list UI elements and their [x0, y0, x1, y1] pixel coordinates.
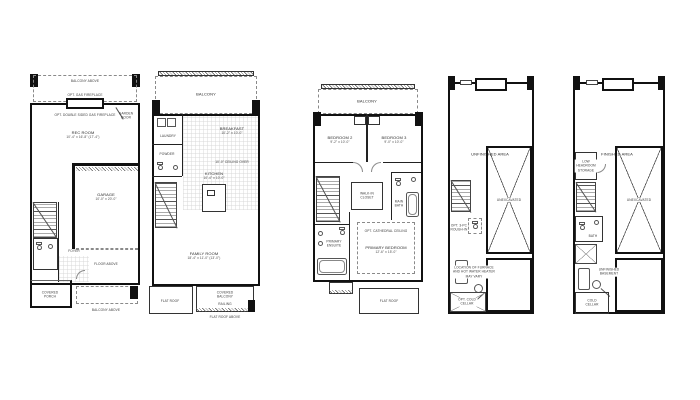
powder-label: POWDER	[160, 152, 175, 156]
room-dims: 9'-2" x 10'-0"	[328, 141, 353, 145]
unfinished-basement-label: UNFINISHED BASEMENT	[597, 268, 620, 277]
label-text: WALK-IN CLOSET	[360, 192, 374, 200]
toilet-icon	[157, 162, 163, 171]
label-text: OPT. 3-PC ROUGH-IN	[451, 224, 468, 232]
label-text: OPT. DOUBLE SIDED GAS FIREPLACE	[54, 113, 115, 117]
toilet-bowl	[473, 224, 478, 230]
interior-wall	[182, 114, 183, 176]
entry-step	[602, 78, 634, 91]
balcony-railing	[329, 290, 353, 294]
label-text: PRIMARY ENSUITE	[326, 240, 341, 248]
label-text: UNEXCAVATED	[497, 198, 521, 202]
garage-wall	[72, 163, 75, 249]
label-text: FLAT ROOF	[161, 299, 180, 303]
closet	[354, 116, 366, 125]
label-text: COLD CELLAR	[585, 299, 598, 307]
ceiling-note-label: 10'-0" CEILING OVER	[215, 160, 249, 164]
plan-basement-unfinished: UNFINISHED AREA UNEXCAVATED OPT. 3-PC RO…	[448, 76, 534, 316]
dryer-icon	[167, 118, 176, 127]
label-text: 10'-0" CEILING OVER	[215, 160, 249, 164]
toilet-icon	[472, 221, 478, 230]
label-text: FLAT ROOF ABOVE	[210, 315, 241, 319]
double-fireplace-label: OPT. DOUBLE SIDED GAS FIREPLACE	[54, 113, 115, 117]
floor-plans-sheet: BALCONY ABOVE OPT. GAS FIREPLACE OPT. DO…	[0, 0, 700, 400]
room-dims: 10'-4" x 16'-8" (17'-4")	[66, 136, 99, 140]
bathtub-icon	[317, 258, 347, 275]
balcony-pier	[152, 100, 160, 114]
garden-door-label: GARDEN DOOR	[119, 112, 133, 121]
interior-wall	[383, 162, 421, 163]
balcony-label: BALCONY	[196, 91, 216, 96]
label-text: FLOOR ABOVE	[94, 262, 118, 266]
label-text: LOCATION OF FURNACE AND HOT WATER HEATER…	[453, 266, 495, 279]
unexcavated-label: UNEXCAVATED	[625, 198, 652, 202]
label-text: OPT. GAS FIREPLACE	[67, 93, 102, 97]
island-sink	[207, 190, 215, 196]
interior-wall	[349, 212, 350, 280]
sink-icon	[411, 177, 416, 182]
label-text: UNEXCAVATED	[627, 198, 651, 202]
toilet-bowl	[580, 225, 585, 231]
garage-beam-hatch	[76, 167, 138, 171]
toilet-bowl	[37, 245, 42, 251]
balcony-above-label: BALCONY ABOVE	[71, 79, 99, 83]
flat-roof-label: FLAT ROOF	[161, 299, 180, 303]
balcony-label: BALCONY	[357, 98, 377, 103]
cold-cellar-label: OPT. COLD CELLAR	[457, 298, 478, 307]
room-name: GARAGE	[97, 192, 115, 197]
interior-wall	[152, 176, 182, 177]
opt-gas-fireplace-label: OPT. GAS FIREPLACE	[67, 93, 102, 97]
plan-basement-finished: FINISHED AREA UNEXCAVATED LOW HEADROOM S…	[573, 76, 665, 316]
interior-wall	[315, 224, 349, 225]
toilet-bowl	[340, 230, 345, 236]
room-dims: 10'-4" x 10'-0"	[203, 177, 224, 181]
balcony-pier	[252, 100, 260, 114]
primary-bedroom-label: PRIMARY BEDROOM12'-6" x 15'-0"	[365, 245, 406, 255]
plan-ground-floor: BALCONY ABOVE OPT. GAS FIREPLACE OPT. DO…	[30, 74, 142, 314]
bath-label: BATH	[587, 234, 599, 238]
furnace-icon	[592, 280, 601, 289]
toilet-icon	[36, 242, 42, 251]
room-name: BREAKFAST	[220, 126, 244, 131]
toilet-bowl	[158, 165, 163, 171]
label-text: BALCONY	[357, 98, 377, 103]
label-text: FLAT ROOF	[380, 299, 399, 303]
sink-icon	[318, 231, 323, 236]
room-name: KITCHEN	[205, 171, 223, 176]
laundry-label: LAUNDRY	[160, 134, 176, 138]
storage-label: LOW HEADROOM STORAGE	[575, 160, 598, 173]
railing-label: RAILING	[218, 302, 231, 306]
sink-icon	[594, 220, 599, 225]
floor-above-line	[76, 248, 138, 250]
toilet-icon	[395, 178, 401, 187]
breakfast-label: BREAKFAST10'-2" x 10'-0"	[220, 126, 244, 136]
label-text: BATH	[589, 234, 598, 238]
room-dims: 12'-6" x 15'-0"	[365, 251, 406, 255]
label-text: UNFINISHED BASEMENT	[599, 268, 619, 276]
garage-wall	[72, 163, 140, 166]
cold-cellar-label: COLD CELLAR	[584, 299, 600, 308]
balcony-above-lower-outline	[76, 286, 138, 304]
bathtub-inner	[319, 260, 345, 273]
plan-second-floor: BALCONY BEDROOM 29'-2" x 10'-0" BEDROOM …	[313, 84, 423, 318]
bathtub-inner	[408, 194, 417, 215]
balcony-railing	[196, 308, 254, 312]
interior-wall	[152, 144, 182, 145]
room-name: PRIMARY BEDROOM	[365, 245, 406, 250]
label-text: POWDER	[160, 152, 175, 156]
sink-icon	[318, 241, 323, 246]
rough-in-label: OPT. 3-PC ROUGH-IN	[451, 224, 468, 233]
bedroom2-label: BEDROOM 29'-2" x 10'-0"	[328, 135, 353, 145]
water-heater-icon	[578, 268, 590, 290]
fireplace	[66, 98, 104, 109]
label-text: GARDEN DOOR	[119, 112, 133, 120]
flat-roof-above-label: FLAT ROOF ABOVE	[210, 315, 241, 319]
label-text: RAILING	[218, 302, 231, 306]
label-text: MAIN BATH	[395, 200, 404, 208]
furnace-note-label: LOCATION OF FURNACE AND HOT WATER HEATER…	[452, 266, 497, 279]
balcony-above-lower-label: BALCONY ABOVE	[92, 308, 120, 312]
unexcavated-label: UNEXCAVATED	[495, 198, 522, 202]
sink-icon	[48, 244, 53, 249]
main-bath-label: MAIN BATH	[393, 200, 405, 209]
label-text: LAUNDRY	[160, 134, 176, 138]
kitchen-island	[202, 184, 226, 212]
family-room-label: FAMILY ROOM18'-4" x 11'-0" (13'-0")	[188, 251, 221, 261]
room-dims: 10'-2" x 10'-0"	[220, 132, 244, 136]
unexcavated-lower-area	[615, 258, 663, 312]
label-text: BALCONY ABOVE	[92, 308, 120, 312]
under-stair-storage	[575, 244, 597, 264]
bedroom3-label: BEDROOM 39'-0" x 10'-0"	[382, 135, 407, 145]
covered-balcony-label: COVERED BALCONY	[217, 291, 233, 300]
kitchen-label: KITCHEN10'-4" x 10'-0"	[203, 171, 224, 181]
walk-in-closet-label: WALK-IN CLOSET	[360, 192, 374, 201]
toilet-icon	[579, 222, 585, 231]
label-text: BALCONY ABOVE	[71, 79, 99, 83]
interior-wall	[391, 172, 392, 220]
floor-above-label: FLOOR ABOVE	[94, 262, 118, 266]
washer-icon	[157, 118, 166, 127]
label-text: OPT. CATHEDRAL CEILING	[365, 229, 408, 233]
interior-wall	[391, 172, 421, 173]
flat-roof-label: FLAT ROOF	[380, 299, 399, 303]
interior-wall	[315, 162, 353, 163]
plan-main-floor: BALCONY LAUNDRY POWDER BREAKFAST10'-2" x…	[152, 70, 260, 320]
entry-step	[475, 78, 507, 91]
closet	[368, 116, 380, 125]
room-name: BEDROOM 2	[328, 135, 353, 140]
rec-room-label: REC ROOM10'-4" x 16'-8" (17'-4")	[66, 130, 99, 140]
label-text: LOW HEADROOM STORAGE	[576, 160, 596, 173]
garage-label: GARAGE10'-0" x 20'-0"	[95, 192, 116, 202]
bathtub-icon	[406, 192, 419, 217]
room-dims: 9'-0" x 10'-0"	[382, 141, 407, 145]
covered-porch-label: COVERED PORCH	[42, 291, 58, 300]
label-text: OPT. COLD CELLAR	[458, 298, 476, 306]
basement-window	[460, 80, 472, 85]
balcony-pier	[248, 300, 255, 312]
primary-ensuite-label: PRIMARY ENSUITE	[325, 240, 343, 249]
label-text: COVERED BALCONY	[217, 291, 233, 299]
room-name: FAMILY ROOM	[190, 251, 219, 256]
ceiling-note-label: OPT. CATHEDRAL CEILING	[365, 229, 408, 233]
basement-window	[586, 80, 598, 85]
room-name: BEDROOM 3	[382, 135, 407, 140]
sink-icon	[173, 165, 178, 170]
label-text: COVERED PORCH	[42, 291, 58, 299]
label-text: BALCONY	[196, 91, 216, 96]
toilet-bowl	[396, 181, 401, 187]
room-name: REC ROOM	[72, 130, 95, 135]
room-dims: 10'-0" x 20'-0"	[95, 198, 116, 202]
balcony-pier	[130, 286, 138, 299]
toilet-icon	[339, 227, 345, 236]
room-dims: 18'-4" x 11'-0" (13'-0")	[188, 257, 221, 261]
